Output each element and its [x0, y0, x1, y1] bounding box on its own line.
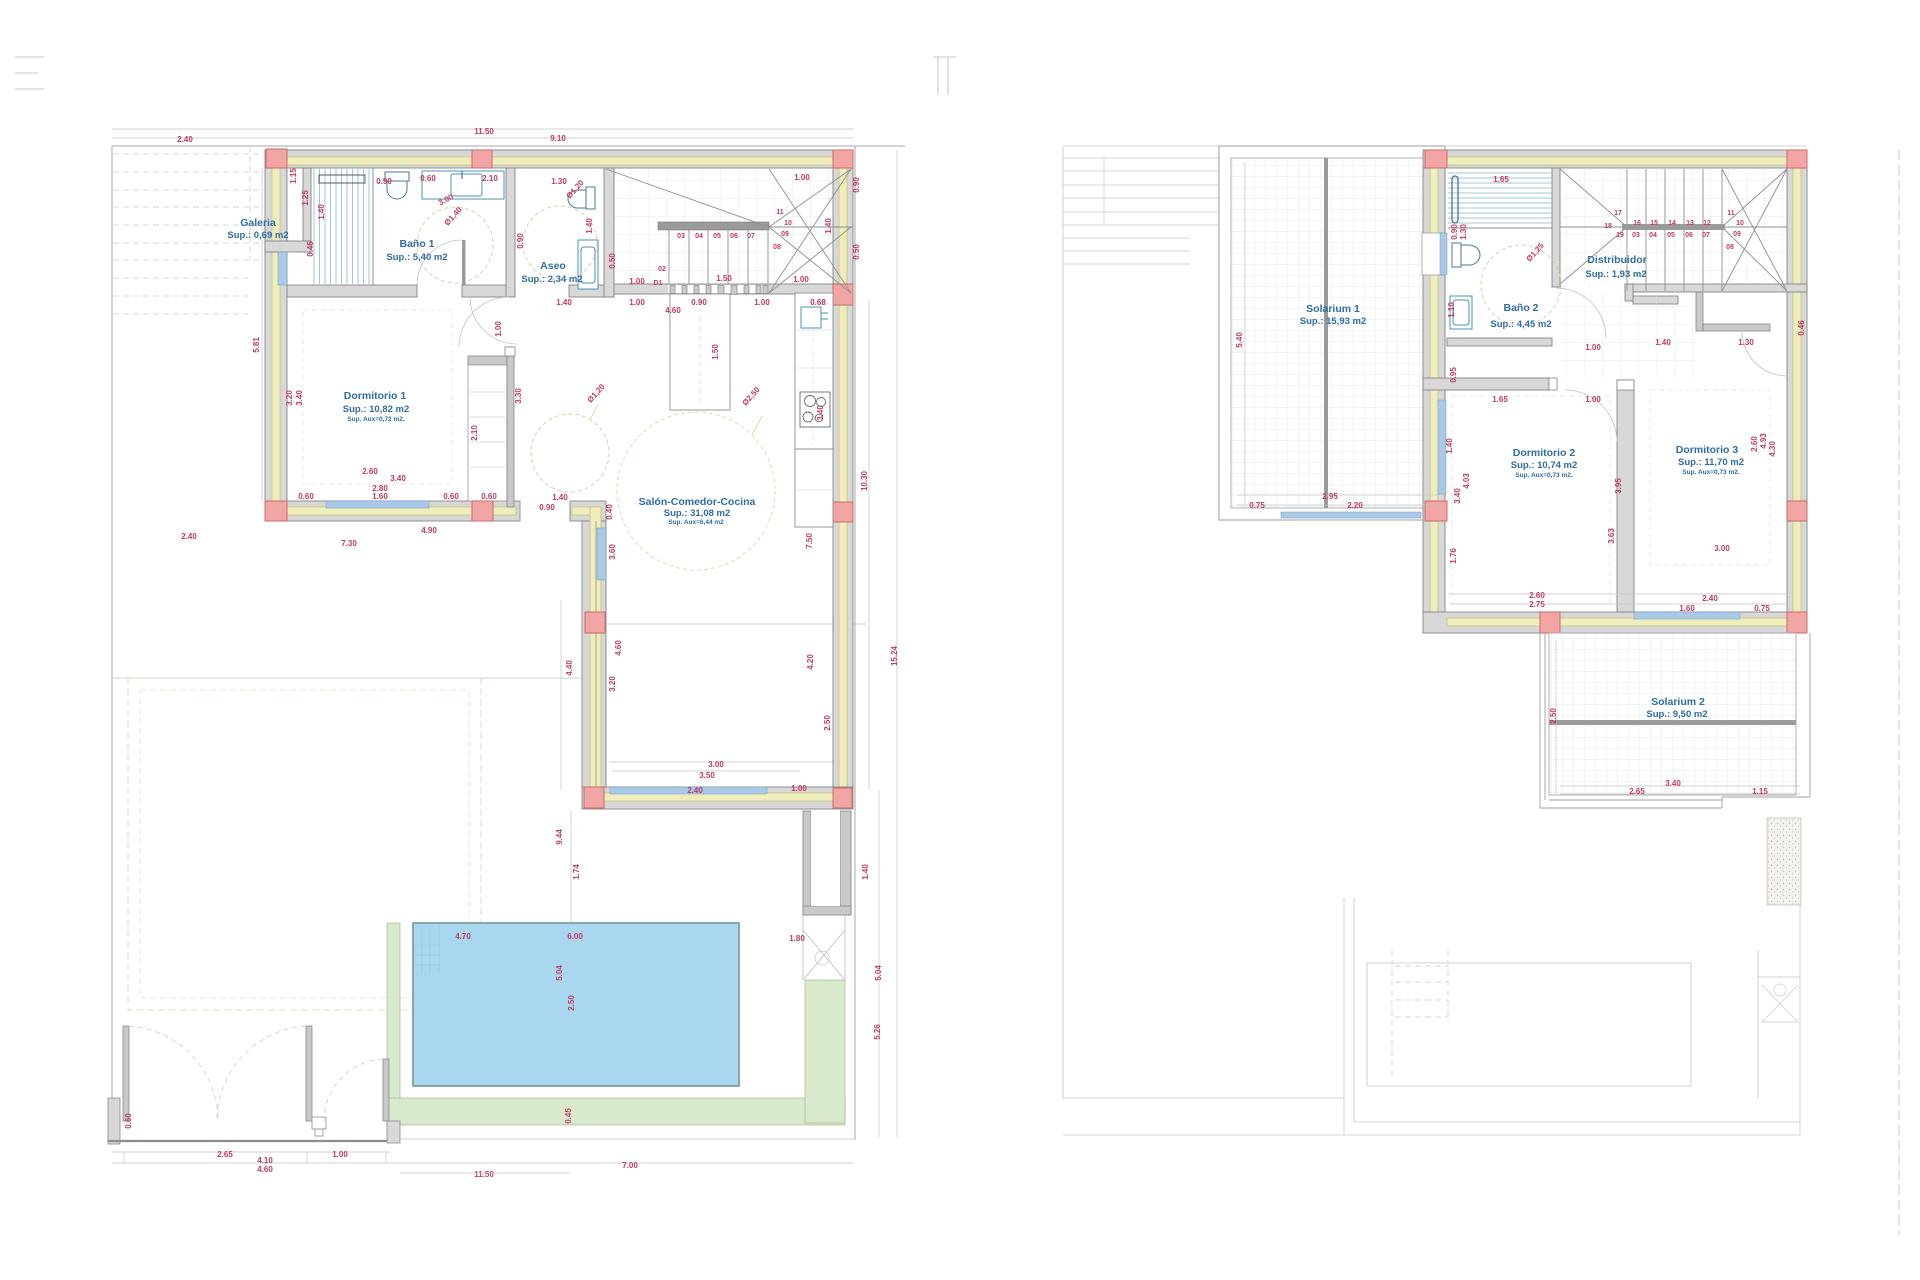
svg-text:3.00: 3.00 [708, 760, 724, 769]
svg-text:Sup. Aux=0,73 m2.: Sup. Aux=0,73 m2. [1682, 469, 1740, 476]
svg-text:11.50: 11.50 [474, 127, 494, 136]
svg-text:05: 05 [713, 233, 721, 240]
svg-text:D1: D1 [654, 280, 663, 287]
svg-text:10: 10 [1736, 220, 1744, 227]
svg-text:5.04: 5.04 [874, 965, 883, 981]
svg-text:17: 17 [1614, 210, 1622, 217]
svg-text:18: 18 [1604, 223, 1612, 230]
svg-text:0.75: 0.75 [1754, 604, 1770, 613]
svg-text:Sup.: 4,45 m2: Sup.: 4,45 m2 [1490, 319, 1551, 330]
svg-text:1.00: 1.00 [1585, 343, 1601, 352]
svg-text:11: 11 [776, 209, 784, 216]
svg-text:2.75: 2.75 [1529, 600, 1545, 609]
svg-text:0.40: 0.40 [605, 504, 614, 520]
svg-text:Sup.: 15,93 m2: Sup.: 15,93 m2 [1300, 316, 1367, 327]
svg-text:1.40: 1.40 [1655, 338, 1671, 347]
svg-text:2.50: 2.50 [823, 715, 832, 731]
svg-text:0.45: 0.45 [306, 241, 315, 257]
svg-text:2.50: 2.50 [567, 995, 576, 1011]
svg-text:3.20: 3.20 [608, 676, 617, 692]
svg-text:4.60: 4.60 [614, 640, 623, 656]
svg-text:Salón-Comedor-Cocina: Salón-Comedor-Cocina [639, 496, 756, 508]
svg-text:16: 16 [1633, 220, 1641, 227]
svg-text:07: 07 [747, 233, 755, 240]
svg-text:4.03: 4.03 [1462, 473, 1471, 489]
svg-text:5.26: 5.26 [873, 1024, 882, 1040]
svg-text:1.50: 1.50 [716, 274, 732, 283]
svg-text:1.15: 1.15 [1752, 787, 1768, 796]
svg-text:15: 15 [1650, 220, 1658, 227]
svg-text:Sup.: 10,74 m2: Sup.: 10,74 m2 [1511, 460, 1578, 471]
svg-text:2.95: 2.95 [1322, 492, 1338, 501]
svg-text:11: 11 [1727, 210, 1735, 217]
svg-text:1.00: 1.00 [793, 275, 809, 284]
svg-text:Sup.: 5,40 m2: Sup.: 5,40 m2 [386, 252, 447, 263]
svg-text:2.40: 2.40 [1702, 594, 1718, 603]
svg-text:Baño 1: Baño 1 [399, 238, 434, 250]
svg-text:0.90: 0.90 [691, 298, 707, 307]
svg-text:Sup.: 9,50 m2: Sup.: 9,50 m2 [1646, 709, 1707, 720]
svg-text:9.44: 9.44 [555, 829, 564, 845]
svg-text:Sup.: 10,82 m2: Sup.: 10,82 m2 [343, 404, 410, 415]
svg-text:1.65: 1.65 [1493, 175, 1509, 184]
svg-text:05: 05 [1667, 232, 1675, 239]
svg-text:3.40: 3.40 [390, 474, 406, 483]
svg-text:04: 04 [1649, 232, 1657, 239]
svg-text:Sup.: 1,93 m2: Sup.: 1,93 m2 [1585, 269, 1646, 280]
svg-text:1.60: 1.60 [1679, 604, 1695, 613]
svg-text:7.50: 7.50 [805, 533, 814, 549]
svg-text:3.63: 3.63 [1607, 528, 1616, 544]
svg-text:04: 04 [695, 233, 703, 240]
svg-text:1.76: 1.76 [1449, 548, 1458, 564]
svg-text:3.00: 3.00 [1714, 544, 1730, 553]
svg-text:Galeria: Galeria [240, 217, 276, 229]
svg-text:1.00: 1.00 [791, 784, 807, 793]
svg-text:5.40: 5.40 [1235, 332, 1244, 348]
svg-text:3.40: 3.40 [1453, 488, 1462, 504]
svg-text:0.45: 0.45 [564, 1108, 573, 1124]
svg-text:0.95: 0.95 [1449, 367, 1458, 383]
svg-text:1.40: 1.40 [861, 864, 870, 880]
svg-text:Solarium 2: Solarium 2 [1651, 696, 1705, 708]
svg-text:0.60: 0.60 [443, 492, 459, 501]
svg-text:4.93: 4.93 [1759, 433, 1768, 449]
svg-text:2.65: 2.65 [1629, 787, 1645, 796]
svg-text:3.40: 3.40 [295, 390, 304, 406]
svg-text:0.60: 0.60 [124, 1113, 133, 1129]
svg-text:1.50: 1.50 [711, 344, 720, 360]
svg-text:03: 03 [677, 233, 685, 240]
svg-text:3.20: 3.20 [285, 390, 294, 406]
svg-text:9.10: 9.10 [550, 134, 566, 143]
svg-text:15.24: 15.24 [890, 645, 899, 666]
svg-text:2.40: 2.40 [181, 532, 197, 541]
svg-text:0.90: 0.90 [1450, 224, 1459, 240]
svg-text:3.40: 3.40 [816, 405, 825, 421]
svg-text:12: 12 [1703, 220, 1711, 227]
svg-text:1.00: 1.00 [332, 1150, 348, 1159]
svg-text:0.75: 0.75 [1249, 501, 1265, 510]
svg-text:4.20: 4.20 [806, 654, 815, 670]
svg-text:13: 13 [1686, 220, 1694, 227]
svg-text:1.40: 1.40 [1445, 438, 1454, 454]
svg-text:6.00: 6.00 [567, 932, 583, 941]
svg-text:0.90: 0.90 [539, 503, 555, 512]
svg-text:10.30: 10.30 [860, 470, 869, 491]
svg-text:08: 08 [773, 244, 781, 251]
svg-text:0.50: 0.50 [852, 244, 861, 260]
svg-text:4.40: 4.40 [565, 660, 574, 676]
svg-text:7.30: 7.30 [341, 539, 357, 548]
svg-text:4.30: 4.30 [1768, 441, 1777, 457]
svg-text:1.40: 1.40 [552, 493, 568, 502]
svg-text:Aseo: Aseo [540, 260, 566, 272]
svg-text:1.80: 1.80 [789, 934, 805, 943]
svg-text:3.40: 3.40 [1665, 779, 1681, 788]
svg-text:1.00: 1.00 [1585, 395, 1601, 404]
svg-text:2.40: 2.40 [687, 786, 703, 795]
svg-text:2.10: 2.10 [470, 425, 479, 441]
svg-text:0.50: 0.50 [608, 253, 617, 269]
svg-text:4.60: 4.60 [665, 306, 681, 315]
svg-text:7.00: 7.00 [622, 1161, 638, 1170]
svg-text:1.10: 1.10 [1447, 302, 1456, 318]
svg-text:06: 06 [1685, 232, 1693, 239]
svg-text:3.95: 3.95 [1614, 478, 1623, 494]
svg-text:19: 19 [1616, 232, 1624, 239]
svg-text:1.00: 1.00 [494, 321, 503, 337]
svg-text:1.40: 1.40 [556, 298, 572, 307]
svg-text:3.60: 3.60 [608, 544, 617, 560]
svg-text:Sup. Aux=6,44 m2: Sup. Aux=6,44 m2 [668, 519, 724, 526]
svg-text:06: 06 [730, 233, 738, 240]
svg-text:4.90: 4.90 [421, 526, 437, 535]
svg-text:1.00: 1.00 [629, 298, 645, 307]
svg-text:2.20: 2.20 [1347, 501, 1363, 510]
svg-text:10: 10 [784, 220, 792, 227]
svg-text:11.50: 11.50 [474, 1170, 494, 1179]
svg-text:Baño 2: Baño 2 [1503, 302, 1538, 314]
svg-text:2.60: 2.60 [1750, 436, 1759, 452]
svg-text:0.60: 0.60 [481, 492, 497, 501]
svg-text:1.60: 1.60 [372, 492, 388, 501]
svg-text:0.90: 0.90 [516, 233, 525, 249]
svg-text:0.90: 0.90 [852, 177, 861, 193]
svg-text:Distribuidor: Distribuidor [1587, 254, 1647, 266]
svg-text:09: 09 [781, 231, 789, 238]
svg-text:1.30: 1.30 [1459, 224, 1468, 240]
svg-text:0.68: 0.68 [810, 298, 826, 307]
svg-text:08: 08 [1726, 244, 1734, 251]
svg-text:Dormitorio 3: Dormitorio 3 [1676, 444, 1739, 456]
svg-text:Sup.: 31,08 m2: Sup.: 31,08 m2 [664, 508, 731, 519]
svg-text:2.50: 2.50 [1549, 708, 1558, 724]
svg-text:Sup. Aux=0,73 m2.: Sup. Aux=0,73 m2. [1515, 472, 1573, 479]
svg-text:0.90: 0.90 [376, 177, 392, 186]
svg-text:4.60: 4.60 [257, 1165, 273, 1174]
svg-text:0.60: 0.60 [420, 174, 436, 183]
svg-text:Dormitorio 1: Dormitorio 1 [344, 390, 407, 402]
svg-text:4.70: 4.70 [455, 932, 471, 941]
svg-text:5.81: 5.81 [252, 337, 261, 353]
svg-text:1.15: 1.15 [289, 168, 298, 184]
svg-text:Sup.: 2,34 m2: Sup.: 2,34 m2 [521, 274, 582, 285]
svg-text:1.74: 1.74 [572, 864, 581, 880]
svg-text:1.00: 1.00 [629, 277, 645, 286]
svg-text:3.30: 3.30 [514, 388, 523, 404]
svg-text:1.40: 1.40 [585, 218, 594, 234]
svg-text:2.60: 2.60 [1529, 591, 1545, 600]
svg-text:4.10: 4.10 [257, 1156, 273, 1165]
svg-text:03: 03 [1632, 232, 1640, 239]
svg-text:1.30: 1.30 [1738, 338, 1754, 347]
svg-text:Dormitorio 2: Dormitorio 2 [1513, 447, 1576, 459]
svg-text:1.25: 1.25 [301, 190, 310, 206]
svg-text:1.65: 1.65 [1492, 395, 1508, 404]
svg-text:2.60: 2.60 [362, 467, 378, 476]
svg-text:1.30: 1.30 [551, 177, 567, 186]
svg-text:14: 14 [1668, 220, 1676, 227]
svg-text:2.65: 2.65 [217, 1150, 233, 1159]
svg-text:3.50: 3.50 [699, 771, 715, 780]
svg-text:1.40: 1.40 [824, 218, 833, 234]
svg-text:Sup. Aux=0,72 m2.: Sup. Aux=0,72 m2. [347, 416, 405, 423]
svg-text:1.40: 1.40 [317, 204, 326, 220]
svg-text:0.60: 0.60 [298, 492, 314, 501]
svg-text:Sup.: 0,69 m2: Sup.: 0,69 m2 [227, 230, 288, 241]
svg-text:02: 02 [658, 266, 666, 273]
svg-text:2.40: 2.40 [177, 135, 193, 144]
svg-text:Sup.: 11,70 m2: Sup.: 11,70 m2 [1678, 457, 1744, 468]
svg-text:07: 07 [1702, 232, 1710, 239]
svg-text:0.46: 0.46 [1797, 320, 1806, 336]
svg-text:09: 09 [1733, 231, 1741, 238]
svg-text:5.04: 5.04 [555, 965, 564, 981]
svg-text:1.00: 1.00 [754, 298, 770, 307]
svg-text:Solarium 1: Solarium 1 [1306, 303, 1360, 315]
svg-text:1.00: 1.00 [794, 173, 810, 182]
svg-text:2.10: 2.10 [482, 174, 498, 183]
